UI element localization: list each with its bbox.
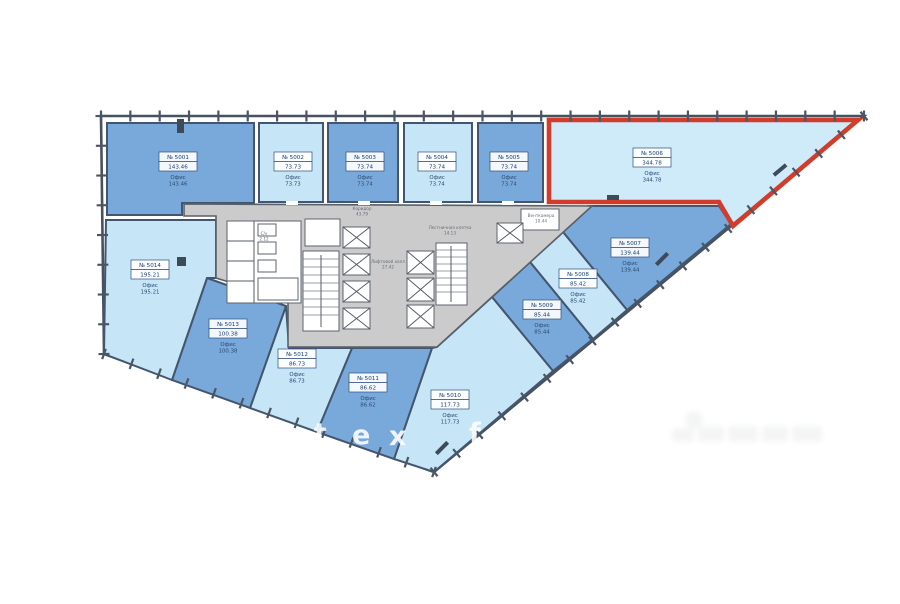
svg-text:85.42: 85.42 [570,299,585,305]
svg-text:Офис: Офис [429,175,444,181]
svg-text:143.46: 143.46 [168,165,188,171]
svg-text:195.21: 195.21 [140,273,160,279]
watermark-letter: e [352,420,370,451]
svg-text:№ 5001: № 5001 [167,155,189,161]
svg-text:139.44: 139.44 [621,268,640,274]
floor-plan-image: № 5001 143.46 Офис 143.46 № 5002 73.73 О… [0,0,900,604]
watermark-logo [672,411,822,442]
svg-text:№ 5008: № 5008 [567,272,589,278]
svg-text:100.38: 100.38 [218,332,238,338]
svg-text:100.38: 100.38 [219,349,238,355]
svg-text:Офис: Офис [501,175,516,181]
svg-text:195.21: 195.21 [141,290,160,296]
svg-text:344.78: 344.78 [643,178,662,184]
svg-text:Офис: Офис [534,323,549,329]
svg-text:117.73: 117.73 [440,403,460,409]
svg-text:Коридор: Коридор [352,206,371,211]
svg-text:27.42: 27.42 [382,265,394,270]
watermark-letter: f [469,418,481,449]
svg-text:№ 5006: № 5006 [641,151,663,157]
svg-text:№ 5003: № 5003 [354,155,376,161]
svg-text:Офис: Офис [570,292,585,298]
floor-plan-svg: № 5001 143.46 Офис 143.46 № 5002 73.73 О… [0,0,900,604]
svg-text:Офис: Офис [285,175,300,181]
svg-text:Венткамера: Венткамера [528,213,555,218]
svg-text:73.74: 73.74 [357,182,373,188]
svg-text:Лестничная клетка: Лестничная клетка [429,225,472,230]
svg-text:73.74: 73.74 [429,182,445,188]
svg-text:№ 5005: № 5005 [498,155,520,161]
svg-text:73.73: 73.73 [285,165,301,171]
svg-text:№ 5012: № 5012 [286,352,308,358]
stairwell [303,251,339,331]
svg-text:73.74: 73.74 [501,182,517,188]
svg-text:Офис: Офис [360,396,375,402]
svg-text:43.79: 43.79 [356,212,368,217]
svg-text:85.44: 85.44 [534,313,550,319]
svg-text:Офис: Офис [357,175,372,181]
watermark-letter: x [389,421,406,452]
svg-text:2.12: 2.12 [259,237,269,242]
stairwell [436,243,467,305]
svg-text:73.74: 73.74 [501,165,517,171]
svg-text:86.62: 86.62 [360,403,375,409]
svg-text:№ 5013: № 5013 [217,322,239,328]
svg-text:73.73: 73.73 [285,182,300,188]
watermark-letter: t [314,418,327,449]
svg-text:10.44: 10.44 [535,219,547,224]
svg-text:Офис: Офис [142,283,157,289]
svg-text:№ 5010: № 5010 [439,393,461,399]
svg-text:Офис: Офис [170,175,185,181]
svg-text:С/у: С/у [261,231,268,236]
elevator-shafts-right [407,251,434,328]
svg-text:№ 5014: № 5014 [139,263,161,269]
svg-text:85.44: 85.44 [534,330,550,336]
svg-text:Лифтовой холл: Лифтовой холл [371,259,405,264]
svg-text:№ 5004: № 5004 [426,155,448,161]
svg-text:73.74: 73.74 [429,165,445,171]
svg-text:Офис: Офис [442,413,457,419]
svg-text:Офис: Офис [220,342,235,348]
svg-text:86.73: 86.73 [289,379,304,385]
svg-text:86.62: 86.62 [360,386,376,392]
svg-text:344.78: 344.78 [642,161,662,167]
svg-text:14.13: 14.13 [444,231,456,236]
svg-text:86.73: 86.73 [289,362,305,368]
svg-text:Офис: Офис [289,372,304,378]
svg-text:73.74: 73.74 [357,165,373,171]
svg-text:№ 5009: № 5009 [531,303,553,309]
core-service-room [305,219,340,246]
elevator-shaft [497,223,523,243]
svg-text:№ 5011: № 5011 [357,376,379,382]
svg-text:№ 5002: № 5002 [282,155,304,161]
svg-text:Офис: Офис [644,171,659,177]
svg-text:№ 5007: № 5007 [619,241,641,247]
svg-text:139.44: 139.44 [620,251,640,257]
svg-text:Офис: Офис [622,261,637,267]
svg-text:117.73: 117.73 [441,420,460,426]
svg-text:143.46: 143.46 [169,182,188,188]
svg-text:85.42: 85.42 [570,282,586,288]
